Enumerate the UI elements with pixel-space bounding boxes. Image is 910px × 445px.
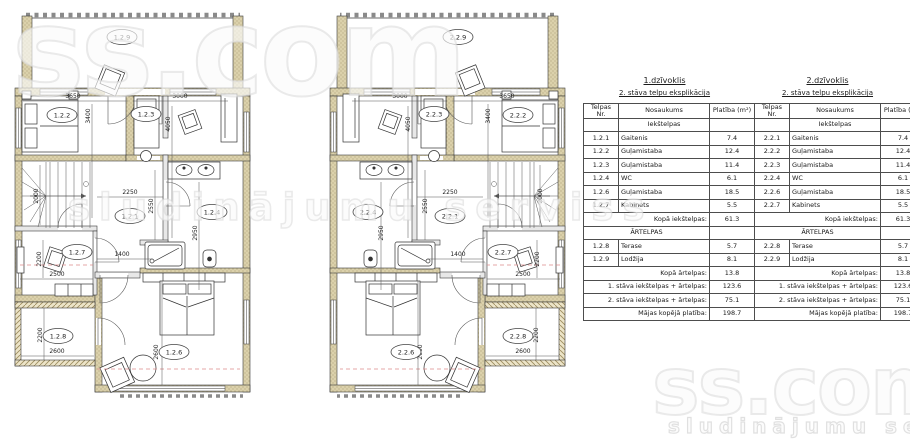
room-label: 2.2.9	[443, 30, 473, 45]
room-name: Lodžija	[619, 253, 710, 267]
room-area: 12.4	[881, 145, 910, 159]
summary-row: Mājas kopējā platība:198.7 Mājas kopējā …	[584, 307, 910, 321]
column-header: Telpas Nr.	[755, 104, 790, 119]
summary-value: 198.7	[881, 307, 910, 321]
room-explication-table: Telpas Nr. Nosaukums Platība (m²) Telpas…	[583, 103, 910, 321]
room-number: 1.2.3	[138, 111, 155, 119]
room-nr: 1.2.9	[584, 253, 619, 267]
apartment1-subtitle: 2. stāva telpu eksplikācija	[583, 89, 746, 97]
room-area: 5.5	[881, 199, 910, 213]
summary-row: 2. stāva iekštelpas + ārtelpas:75.1 2. s…	[584, 294, 910, 308]
summary-value: 13.8	[881, 267, 910, 281]
room-area: 8.1	[881, 253, 910, 267]
summary-label: Kopā ārtelpas:	[584, 267, 710, 281]
room-number: 1.2.6	[166, 349, 183, 357]
room-label: 2.2.2	[503, 108, 533, 123]
dim-label: 3000	[172, 93, 187, 100]
room-number: 1.2.7	[69, 249, 86, 257]
room-number: 1.2.2	[54, 112, 71, 120]
room-name: Guļamistaba	[619, 186, 710, 200]
section-label: ĀRTELPAS	[584, 226, 710, 240]
room-label: 1.2.1	[115, 209, 145, 224]
room-name: Terase	[619, 240, 710, 254]
summary-value: 123.6	[710, 280, 755, 294]
room-number: 1.2.8	[50, 333, 67, 341]
table-row: 1.2.8Terase5.7 2.2.8Terase5.7	[584, 240, 910, 254]
room-name: Guļamistaba	[619, 159, 710, 173]
room-number: 2.2.9	[450, 34, 467, 42]
section-row: Iekštelpas Iekštelpas	[584, 118, 910, 132]
room-name: Gaitenis	[619, 132, 710, 146]
column-header: Telpas Nr.	[584, 104, 619, 119]
dim-label: 2550	[422, 198, 429, 213]
watermark-tagline: sludinājumu serviss	[668, 414, 910, 438]
dim-label: 3400	[85, 108, 92, 123]
summary-label: Mājas kopējā platība:	[755, 307, 881, 321]
room-nr: 1.2.8	[584, 240, 619, 254]
room-nr: 2.2.4	[755, 172, 790, 186]
room-name: Guļamistaba	[790, 145, 881, 159]
room-name: Guļamistaba	[790, 159, 881, 173]
room-nr: 2.2.6	[755, 186, 790, 200]
dim-label: 3000	[392, 93, 407, 100]
section-label: Iekštelpas	[790, 118, 881, 132]
floor-plan-apartment-1: 3650 3000 3400 4050 2250 2550 2950 1400 …	[0, 0, 290, 445]
room-area: 8.1	[710, 253, 755, 267]
dim-label: 3650	[65, 93, 80, 100]
summary-label: 1. stāva iekštelpas + ārtelpas:	[755, 280, 881, 294]
room-nr: 1.2.1	[584, 132, 619, 146]
dim-label: 2550	[148, 198, 155, 213]
table-row: 1.2.9Lodžija8.1 2.2.9Lodžija8.1	[584, 253, 910, 267]
room-name: Kabinets	[790, 199, 881, 213]
room-nr: 1.2.3	[584, 159, 619, 173]
room-number: 1.2.4	[204, 209, 221, 217]
room-name: Gaitenis	[790, 132, 881, 146]
summary-value: 123.6	[881, 280, 910, 294]
dim-label: 3400	[485, 108, 492, 123]
column-header: Platība (m²)	[881, 104, 910, 119]
room-name: Guļamistaba	[619, 145, 710, 159]
section-row: ĀRTELPAS ĀRTELPAS	[584, 226, 910, 240]
table-header-row: Telpas Nr. Nosaukums Platība (m²) Telpas…	[584, 104, 910, 119]
room-nr: 1.2.7	[584, 199, 619, 213]
room-nr: 2.2.7	[755, 199, 790, 213]
dim-label: 2500	[515, 271, 530, 278]
summary-value: 75.1	[881, 294, 910, 308]
room-label: 1.2.8	[43, 329, 73, 344]
room-nr: 2.2.2	[755, 145, 790, 159]
room-area: 7.4	[881, 132, 910, 146]
room-nr: 2.2.8	[755, 240, 790, 254]
dim-label: 2200	[36, 251, 43, 266]
dim-label: 2000	[537, 188, 544, 203]
summary-value: 75.1	[710, 294, 755, 308]
dim-label: 2600	[515, 348, 530, 355]
room-label: 2.2.7	[488, 245, 518, 260]
section-label: ĀRTELPAS	[755, 226, 881, 240]
room-area: 5.7	[881, 240, 910, 254]
apartment2-subtitle: 2. stāva telpu eksplikācija	[746, 89, 909, 97]
table-row: 1.2.4WC6.1 2.2.4WC6.1	[584, 172, 910, 186]
watermark-brand: ss.com	[652, 340, 910, 433]
room-number: 2.2.4	[360, 209, 377, 217]
dim-label: 4050	[405, 116, 412, 131]
section-label: Iekštelpas	[619, 118, 710, 132]
room-area: 18.5	[881, 186, 910, 200]
summary-label: 1. stāva iekštelpas + ārtelpas:	[584, 280, 710, 294]
room-number: 2.2.7	[495, 249, 512, 257]
summary-value: 198.7	[710, 307, 755, 321]
room-area: 5.5	[710, 199, 755, 213]
room-name: WC	[790, 172, 881, 186]
summary-row: Kopā ārtelpas:13.8 Kopā ārtelpas:13.8	[584, 267, 910, 281]
room-nr: 2.2.1	[755, 132, 790, 146]
dim-label: 2200	[533, 327, 540, 342]
summary-value: 61.3	[881, 213, 910, 227]
dim-label: 1400	[114, 251, 129, 258]
room-number: 2.2.8	[510, 333, 527, 341]
explication-table-section: 1.dzīvoklis 2. stāva telpu eksplikācija …	[583, 76, 910, 321]
apartment2-title: 2.dzīvoklis	[746, 76, 909, 85]
room-nr: 2.2.3	[755, 159, 790, 173]
dim-label: 2950	[192, 225, 199, 240]
table-row: 1.2.1Gaitenis7.4 2.2.1Gaitenis7.4	[584, 132, 910, 146]
dim-label: 2600	[49, 348, 64, 355]
room-area: 11.4	[881, 159, 910, 173]
summary-label: Mājas kopējā platība:	[584, 307, 710, 321]
room-label: 1.2.3	[131, 107, 161, 122]
room-label: 2.2.6	[391, 345, 421, 360]
summary-label: Kopā iekštelpas:	[584, 213, 710, 227]
room-label: 1.2.6	[159, 345, 189, 360]
dim-label: 1400	[450, 251, 465, 258]
summary-row: Kopā iekštelpas:61.3 Kopā iekštelpas:61.…	[584, 213, 910, 227]
column-header: Nosaukums	[790, 104, 881, 119]
dim-label: 2500	[49, 271, 64, 278]
room-number: 1.2.1	[122, 213, 139, 221]
room-label: 1.2.2	[47, 108, 77, 123]
summary-label: Kopā iekštelpas:	[755, 213, 881, 227]
apartment1-title: 1.dzīvoklis	[583, 76, 746, 85]
column-header: Nosaukums	[619, 104, 710, 119]
dim-label: 4050	[165, 116, 172, 131]
table-row: 1.2.2Guļamistaba12.4 2.2.2Guļamistaba12.…	[584, 145, 910, 159]
summary-label: 2. stāva iekštelpas + ārtelpas:	[584, 294, 710, 308]
summary-row: 1. stāva iekštelpas + ārtelpas:123.6 1. …	[584, 280, 910, 294]
dim-label: 2250	[122, 189, 137, 196]
room-area: 12.4	[710, 145, 755, 159]
room-area: 6.1	[710, 172, 755, 186]
dim-label: 2950	[378, 225, 385, 240]
room-name: Guļamistaba	[790, 186, 881, 200]
summary-value: 61.3	[710, 213, 755, 227]
room-nr: 1.2.4	[584, 172, 619, 186]
room-area: 18.5	[710, 186, 755, 200]
room-label: 1.2.9	[107, 30, 137, 45]
room-area: 5.7	[710, 240, 755, 254]
room-nr: 1.2.2	[584, 145, 619, 159]
summary-value: 13.8	[710, 267, 755, 281]
dim-label: 2200	[534, 251, 541, 266]
room-label: 2.2.8	[503, 329, 533, 344]
table-titles: 1.dzīvoklis 2. stāva telpu eksplikācija …	[583, 76, 910, 97]
dim-label: 3650	[499, 93, 514, 100]
table-row: 1.2.3Guļamistaba11.4 2.2.3Guļamistaba11.…	[584, 159, 910, 173]
room-area: 6.1	[881, 172, 910, 186]
table-row: 1.2.7Kabinets5.5 2.2.7Kabinets5.5	[584, 199, 910, 213]
room-number: 2.2.1	[442, 213, 459, 221]
table-row: 1.2.6Guļamistaba18.5 2.2.6Guļamistaba18.…	[584, 186, 910, 200]
room-nr: 2.2.9	[755, 253, 790, 267]
room-name: WC	[619, 172, 710, 186]
room-label: 1.2.7	[62, 245, 92, 260]
summary-label: 2. stāva iekštelpas + ārtelpas:	[755, 294, 881, 308]
room-label: 2.2.4	[353, 205, 383, 220]
room-number: 2.2.2	[510, 112, 527, 120]
room-name: Terase	[790, 240, 881, 254]
room-area: 7.4	[710, 132, 755, 146]
room-number: 2.2.6	[398, 349, 415, 357]
room-nr: 1.2.6	[584, 186, 619, 200]
room-number: 1.2.9	[114, 34, 131, 42]
room-name: Lodžija	[790, 253, 881, 267]
dim-label: 2000	[33, 188, 40, 203]
floor-plan-apartment-2: 3650 3000 3400 4050 2250 2550 2950 1400 …	[290, 0, 580, 445]
column-header: Platība (m²)	[710, 104, 755, 119]
floorplan-document: 3650 3000 3400 4050 2250 2550 2950 1400 …	[0, 0, 910, 445]
room-label: 1.2.4	[197, 205, 227, 220]
summary-label: Kopā ārtelpas:	[755, 267, 881, 281]
room-area: 11.4	[710, 159, 755, 173]
room-name: Kabinets	[619, 199, 710, 213]
room-label: 2.2.3	[419, 107, 449, 122]
room-number: 2.2.3	[426, 111, 443, 119]
dim-label: 2250	[442, 189, 457, 196]
room-label: 2.2.1	[435, 209, 465, 224]
